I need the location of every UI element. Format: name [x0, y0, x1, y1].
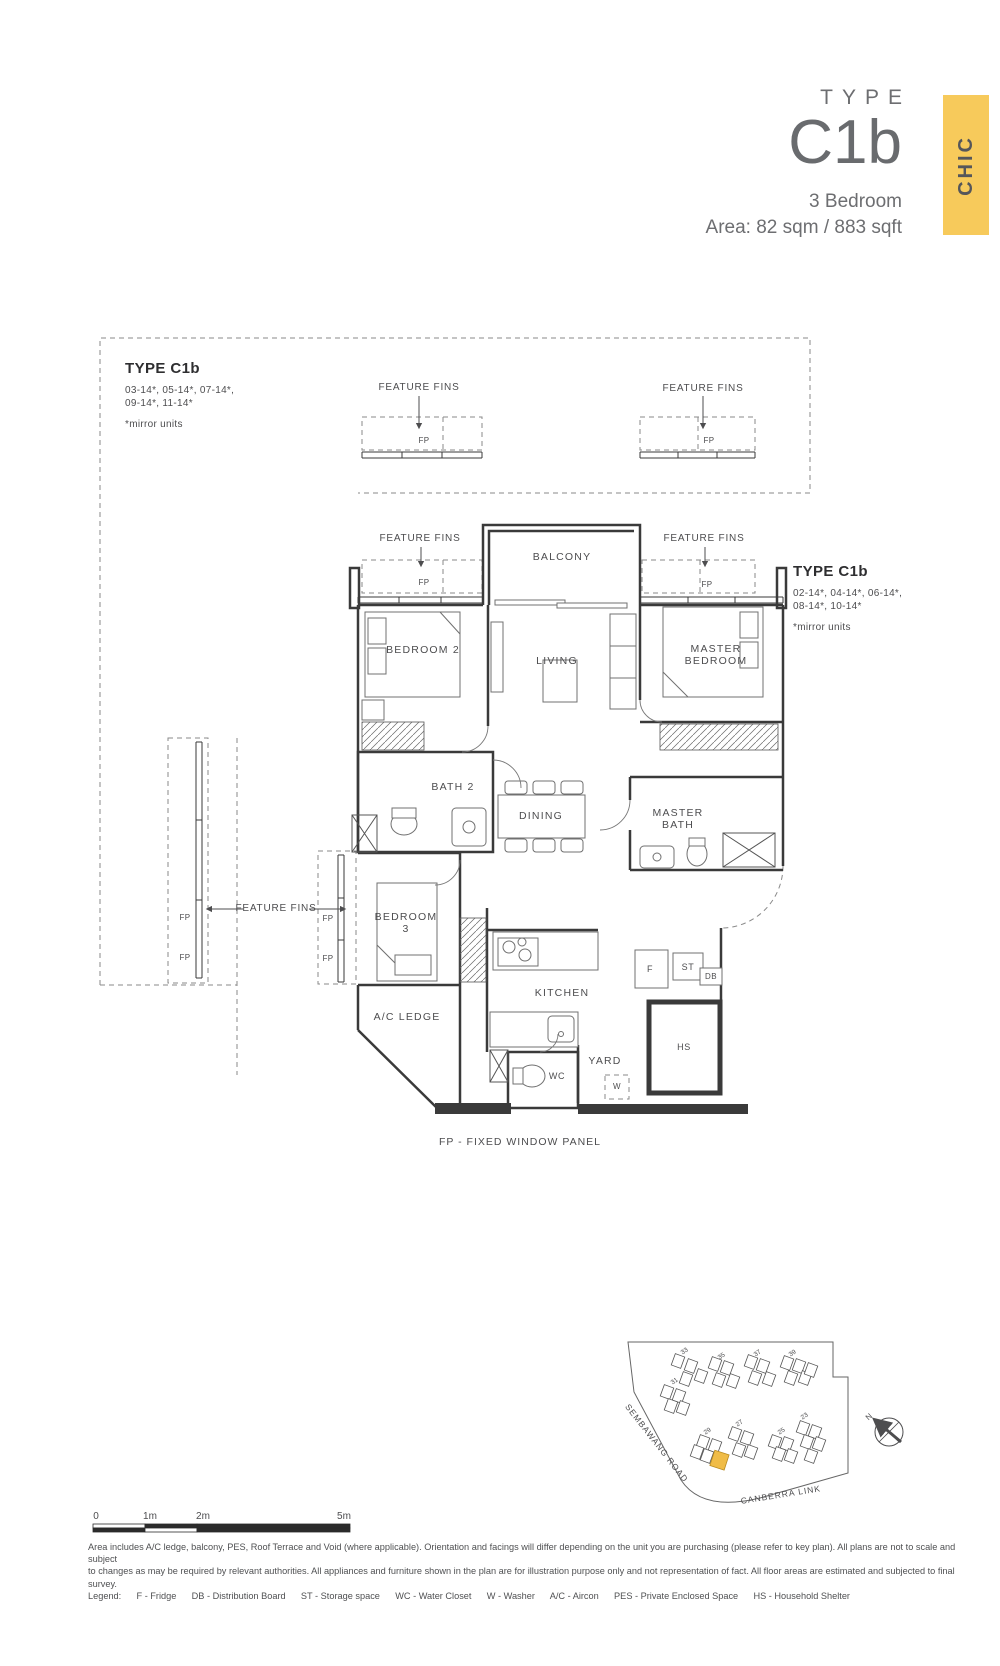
room-label-kitchen: KITCHEN — [535, 987, 590, 999]
scale-tick: 5m — [337, 1511, 351, 1522]
fp-marker: FP — [179, 952, 190, 964]
fp-marker: FP — [703, 435, 714, 447]
scale-tick: 2m — [196, 1511, 210, 1522]
disclaimer-line-2: to changes as may be required by relevan… — [88, 1565, 978, 1589]
room-label-dining: DINING — [519, 810, 563, 822]
room-label-ac-ledge: A/C LEDGE — [374, 1011, 441, 1023]
room-label-wc: WC — [549, 1070, 565, 1082]
disclaimer: Area includes A/C ledge, balcony, PES, R… — [88, 1541, 978, 1602]
scale-tick: 0 — [93, 1511, 99, 1522]
floor-plan-page: TYPE C1b 3 Bedroom Area: 82 sqm / 883 sq… — [0, 0, 1000, 1666]
fixture-label-fridge: F — [647, 963, 653, 975]
fixture-label-washer: W — [613, 1081, 621, 1093]
fp-marker: FP — [322, 953, 333, 965]
north-compass-icon — [875, 1418, 903, 1446]
fixture-label-db: DB — [705, 971, 717, 983]
legend-line: Legend: F - Fridge DB - Distribution Boa… — [88, 1590, 978, 1602]
room-label-master-bath: MASTER BATH — [653, 807, 704, 831]
room-label-master-bedroom: MASTER BEDROOM — [685, 643, 748, 667]
room-label-bedroom2: BEDROOM 2 — [386, 644, 460, 656]
room-label-bedroom3: BEDROOM 3 — [375, 911, 438, 935]
fp-marker: FP — [322, 913, 333, 925]
room-label-balcony: BALCONY — [533, 551, 592, 563]
fp-marker: FP — [179, 912, 190, 924]
room-label-living: LIVING — [536, 655, 578, 667]
fp-legend-note: FP - FIXED WINDOW PANEL — [439, 1136, 601, 1148]
feature-fins-label: FEATURE FINS — [662, 383, 743, 395]
bedroom-count: 3 Bedroom — [706, 191, 902, 213]
unit-block-right-note: *mirror units — [793, 622, 902, 633]
fp-marker: FP — [418, 577, 429, 589]
unit-block-left-units-2: 09-14*, 11-14* — [125, 397, 234, 410]
collection-tab: CHIC — [943, 95, 989, 235]
unit-block-left-note: *mirror units — [125, 419, 234, 430]
type-label: TYPE — [706, 86, 911, 110]
fp-marker: FP — [418, 435, 429, 447]
unit-block-right-units-2: 08-14*, 10-14* — [793, 600, 902, 613]
scale-bar — [93, 1524, 350, 1532]
unit-block-right-title: TYPE C1b — [793, 563, 902, 580]
unit-block-right-units-1: 02-14*, 04-14*, 06-14*, — [793, 587, 902, 600]
unit-block-left-title: TYPE C1b — [125, 360, 234, 377]
floor-plan-linework — [0, 0, 1000, 1666]
unit-block-left: TYPE C1b 03-14*, 05-14*, 07-14*, 09-14*,… — [125, 360, 234, 430]
fp-marker: FP — [701, 579, 712, 591]
disclaimer-line-1: Area includes A/C ledge, balcony, PES, R… — [88, 1541, 978, 1565]
scale-tick: 1m — [143, 1511, 157, 1522]
fixture-label-storage: ST — [682, 961, 695, 973]
feature-fins-label: FEATURE FINS — [663, 533, 744, 545]
type-code: C1b — [706, 110, 902, 175]
feature-fins-label: FEATURE FINS — [379, 533, 460, 545]
feature-fins-label: FEATURE FINS — [378, 382, 459, 394]
unit-block-left-units-1: 03-14*, 05-14*, 07-14*, — [125, 384, 234, 397]
unit-header: TYPE C1b 3 Bedroom Area: 82 sqm / 883 sq… — [706, 86, 902, 239]
site-map-buildings — [660, 1354, 826, 1464]
room-label-bath2: BATH 2 — [431, 781, 474, 793]
room-label-hs: HS — [677, 1041, 691, 1053]
collection-tab-label: CHIC — [955, 135, 978, 196]
unit-area: Area: 82 sqm / 883 sqft — [706, 217, 902, 239]
feature-fins-label: FEATURE FINS — [235, 903, 316, 915]
room-label-yard: YARD — [588, 1055, 621, 1067]
unit-block-right: TYPE C1b 02-14*, 04-14*, 06-14*, 08-14*,… — [793, 563, 902, 633]
